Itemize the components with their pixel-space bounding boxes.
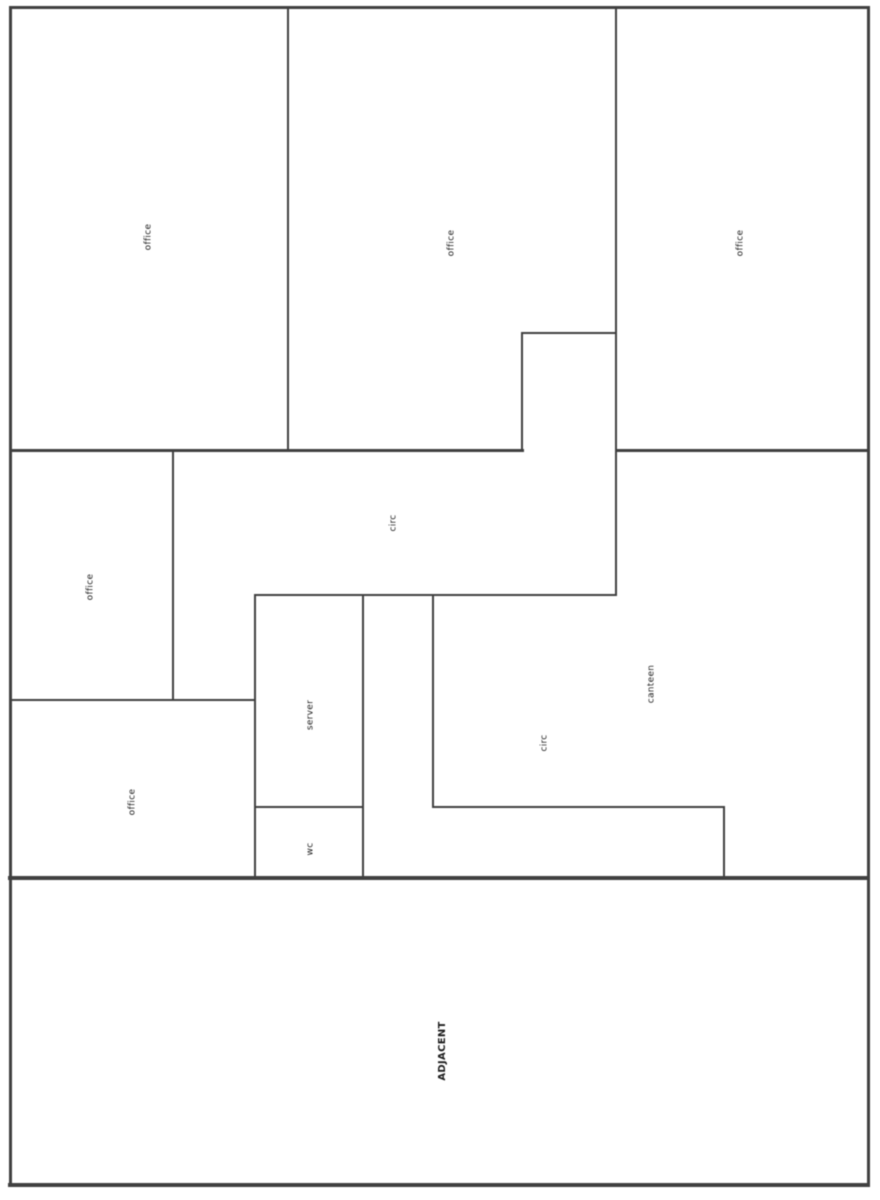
room-label-adjacent: ADJACENT [438, 1021, 448, 1080]
room-label-server: server [307, 700, 316, 730]
wall-circ-notch-left [521, 332, 523, 451]
wall-circ-hall-bottom-wall [254, 594, 617, 596]
wall-canteen-top-wall [615, 449, 870, 452]
wall-office1-office2-wall [287, 6, 289, 451]
wall-circ2-left-wall [432, 594, 434, 808]
wall-server-wc-divider [254, 806, 364, 808]
wall-outer-bottom [8, 1183, 870, 1187]
wall-outer-top [9, 6, 870, 9]
wall-office4-right-wall [172, 449, 174, 701]
room-label-office: office [129, 789, 138, 816]
room-label-wc: wc [307, 843, 316, 856]
room-label-office: office [87, 574, 96, 601]
wall-outer-right [867, 6, 870, 1187]
wall-adjacent-party-wall [8, 876, 870, 880]
wall-office2-office3-wall [615, 6, 617, 596]
wall-circ2-arm-top-wall [432, 806, 725, 808]
room-label-office: office [737, 230, 746, 257]
room-label-office: office [145, 224, 154, 251]
wall-office4-office5-wall [9, 699, 256, 701]
wall-circ2-arm-right-wall [723, 806, 725, 879]
floorplan-canvas: officeofficeofficeofficeofficecircserver… [0, 0, 880, 1200]
room-label-circ: circ [541, 734, 550, 751]
room-label-canteen: canteen [648, 665, 657, 704]
wall-circ-notch-top [521, 332, 617, 334]
wall-server-right-wall [362, 594, 364, 879]
wall-outer-left [9, 6, 12, 1187]
wall-server-left-wall [254, 594, 256, 879]
room-label-office: office [448, 230, 457, 257]
wall-offices-top-wall-left [9, 449, 524, 452]
room-label-circ: circ [390, 514, 399, 531]
